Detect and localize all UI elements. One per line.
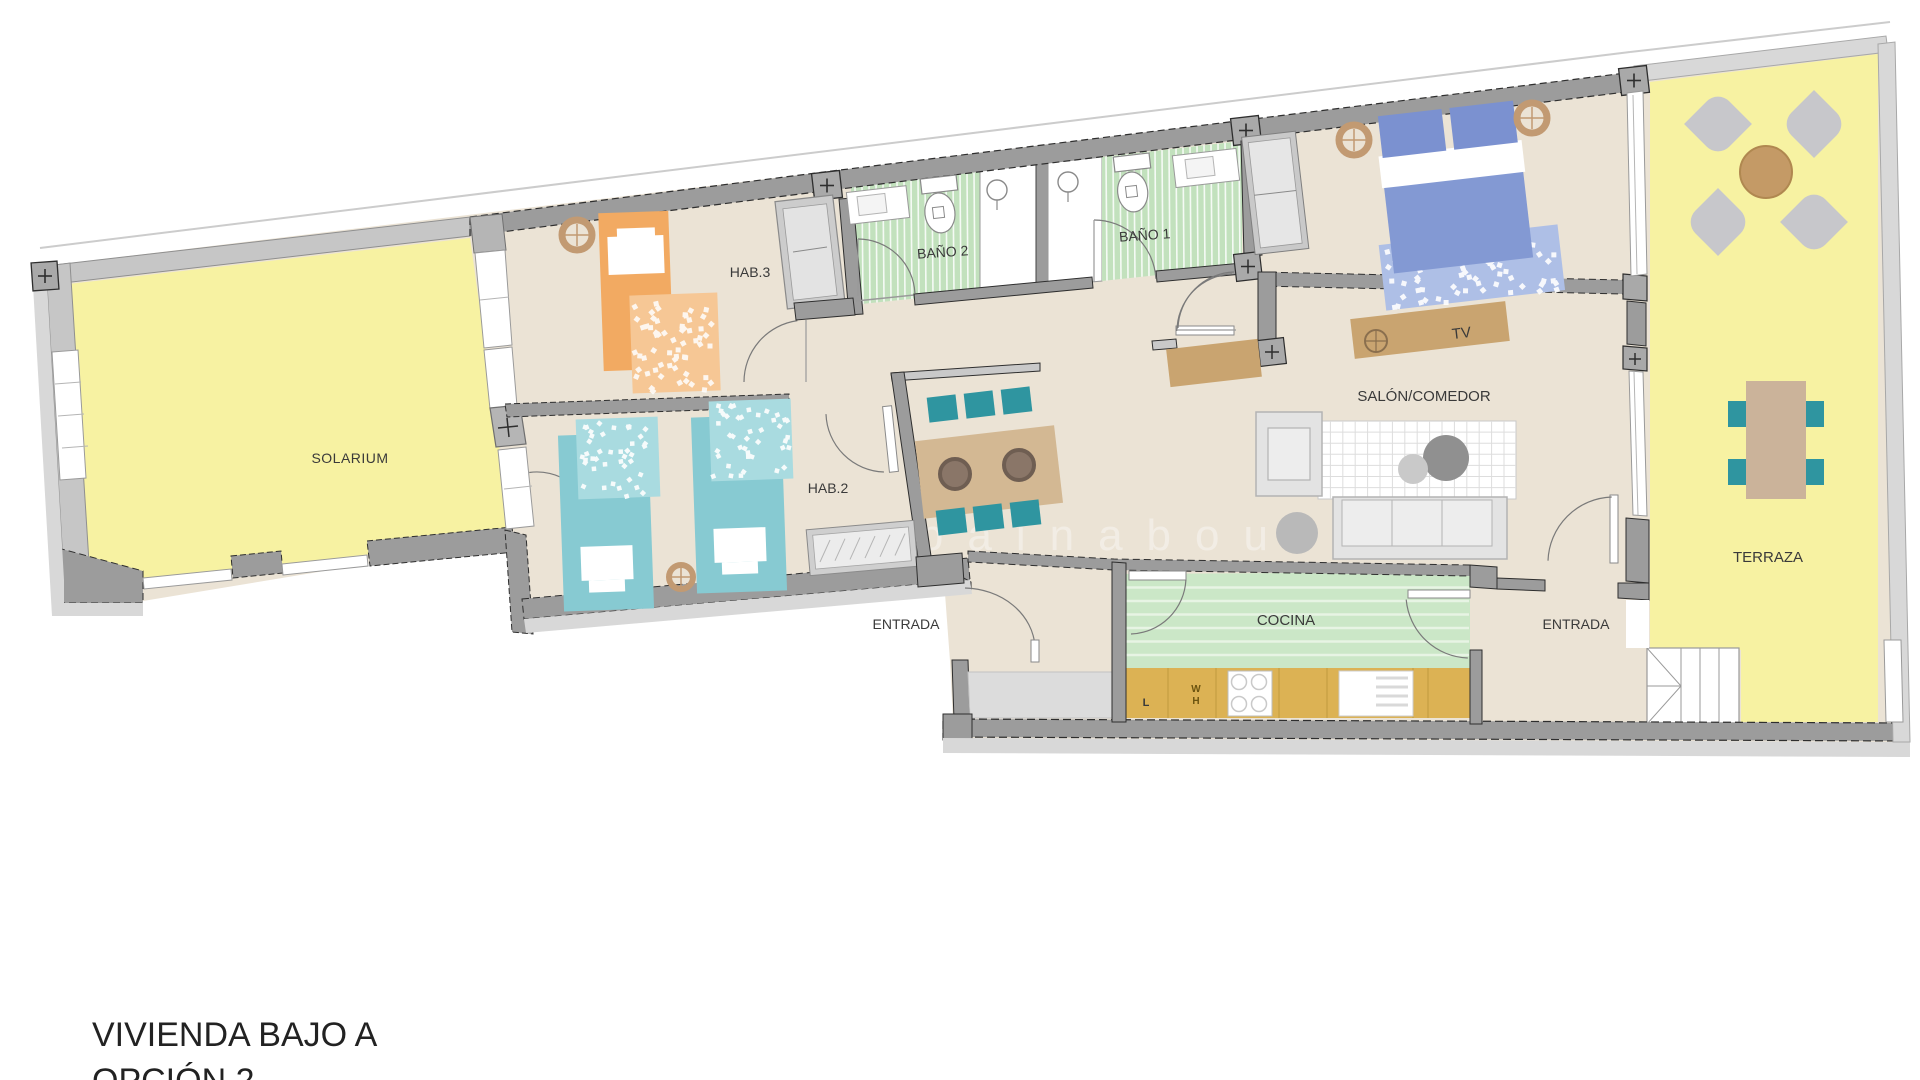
svg-text:HAB.3: HAB.3 — [730, 264, 771, 280]
svg-text:OPCIÓN 2: OPCIÓN 2 — [92, 1062, 254, 1080]
svg-text:HAB.2: HAB.2 — [808, 480, 849, 496]
svg-text:H: H — [1192, 696, 1199, 707]
svg-text:TERRAZA: TERRAZA — [1733, 549, 1803, 566]
svg-text:VIVIENDA BAJO A: VIVIENDA BAJO A — [92, 1016, 378, 1054]
svg-text:L: L — [1143, 697, 1150, 709]
svg-text:ENTRADA: ENTRADA — [873, 616, 941, 632]
svg-text:SALÓN/COMEDOR: SALÓN/COMEDOR — [1357, 388, 1491, 405]
svg-text:ENTRADA: ENTRADA — [1543, 616, 1611, 632]
svg-text:COCINA: COCINA — [1257, 612, 1315, 629]
svg-text:SOLARIUM: SOLARIUM — [311, 450, 388, 466]
svg-text:W: W — [1191, 684, 1201, 695]
svg-text:TV: TV — [1451, 324, 1472, 343]
